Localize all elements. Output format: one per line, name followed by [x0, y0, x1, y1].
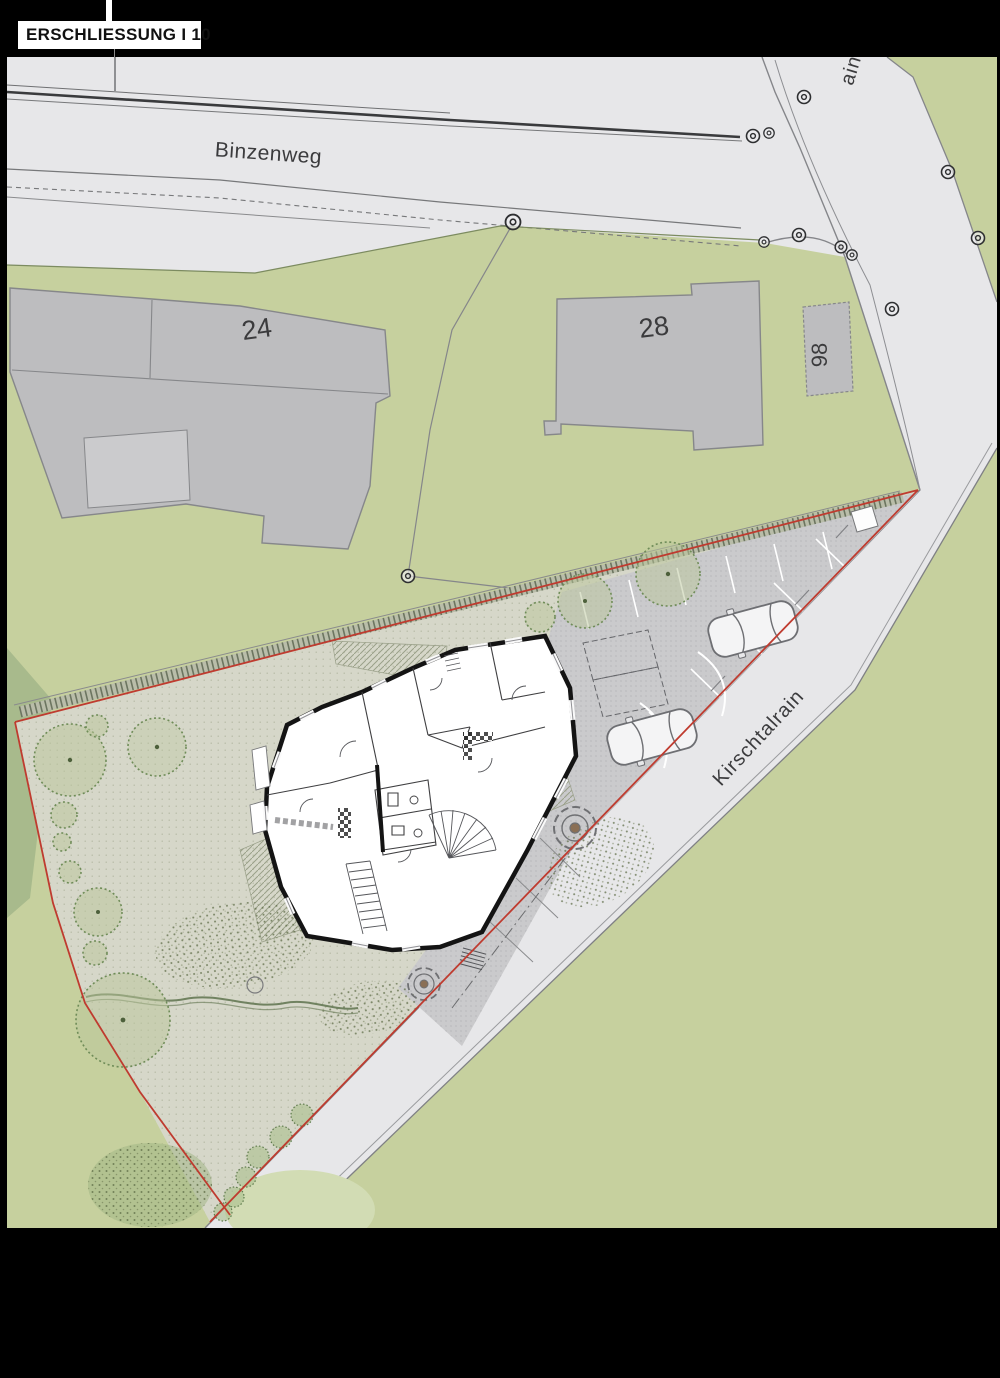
tree-icon: [59, 861, 81, 883]
tree-icon: [53, 833, 71, 851]
survey-marker-icon: [747, 130, 760, 143]
survey-marker-icon: [972, 232, 985, 245]
survey-marker-icon: [793, 229, 806, 242]
site-plan-drawing: Binzenweg Kirschtalrain ain 24 28 98: [0, 0, 1000, 1378]
survey-marker-icon: [759, 237, 769, 247]
survey-marker-icon: [506, 215, 521, 230]
building-28-footprint: [544, 281, 763, 450]
kitchen-counter: [463, 732, 472, 760]
building-28-label: 28: [637, 310, 670, 343]
survey-marker-icon: [764, 128, 774, 138]
bush-icon: [291, 1104, 313, 1126]
building-24-label: 24: [240, 312, 274, 346]
page-title: ERSCHLIESSUNG I 10: [18, 21, 201, 49]
survey-marker-icon: [886, 303, 899, 316]
site-plan-canvas: Binzenweg Kirschtalrain ain 24 28 98 ERS…: [0, 0, 1000, 1378]
survey-marker-icon: [835, 241, 847, 253]
title-leader-line: [114, 49, 115, 58]
title-tick-mark: [106, 0, 112, 22]
survey-marker-icon: [847, 250, 857, 260]
kitchen-counter: [338, 808, 351, 838]
tree-icon: [525, 602, 555, 632]
tree-icon: [51, 802, 77, 828]
tree-icon: [86, 715, 108, 737]
survey-marker-icon: [402, 570, 415, 583]
survey-marker-icon: [798, 91, 811, 104]
tree-icon: [83, 941, 107, 965]
bush-icon: [270, 1126, 292, 1148]
survey-marker-icon: [942, 166, 955, 179]
building-98-label: 98: [807, 343, 832, 367]
